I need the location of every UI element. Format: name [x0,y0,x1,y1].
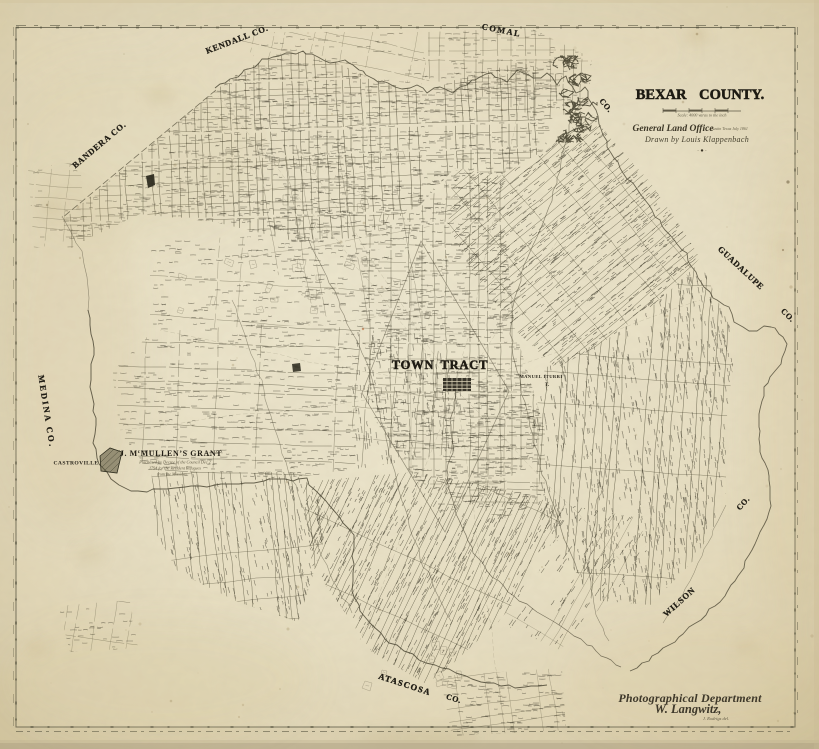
svg-text:...Austin Texas July 1861: ...Austin Texas July 1861 [708,126,748,131]
svg-text:· ● ·: · ● · [697,148,707,154]
svg-text:BEXAR COUNTY.: BEXAR COUNTY. [636,87,765,103]
svg-text:Purchased by Decree of the Cou: Purchased by Decree of the Council Dec 2 [138,460,210,465]
svg-text:CASTROVILLE: CASTROVILLE [53,461,98,467]
svg-text:1794 for the Resident Refugees: 1794 for the Resident Refugees [149,466,201,471]
svg-text:J. Rodrigs del.: J. Rodrigs del. [703,716,729,721]
svg-text:General Land Office: General Land Office [632,124,714,134]
svg-text:Drawn by Louis Klappenbach: Drawn by Louis Klappenbach [644,135,749,144]
svg-text:J. McMULLEN’S GRANT: J. McMULLEN’S GRANT [120,449,222,458]
svg-text:MANUEL ITURRI: MANUEL ITURRI [519,374,562,379]
svg-text:from the Missions: from the Missions [157,472,187,477]
svg-text:Scale: 4000 varas to the inch: Scale: 4000 varas to the inch [678,113,727,118]
svg-text:TOWN TRACT: TOWN TRACT [392,358,489,372]
svg-text:W. Langwitz,: W. Langwitz, [655,702,722,716]
